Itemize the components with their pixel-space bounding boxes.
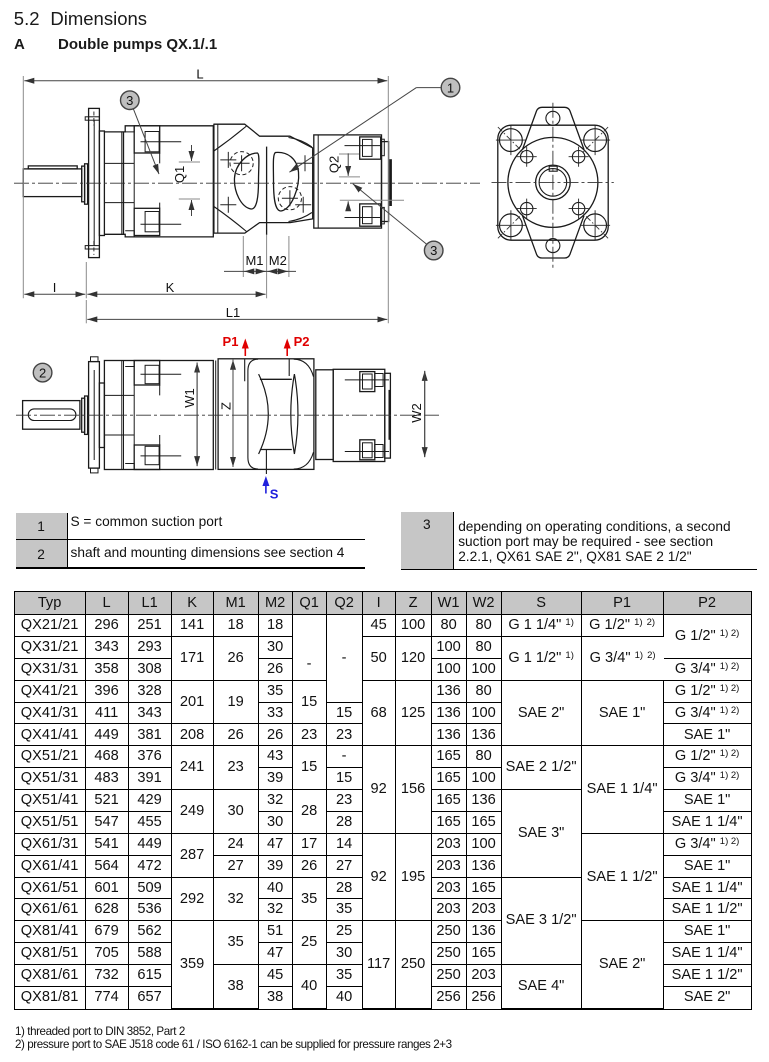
svg-text:3: 3 (126, 93, 133, 108)
svg-text:1: 1 (447, 80, 454, 95)
svg-text:3: 3 (430, 243, 437, 258)
svg-text:L: L (196, 67, 203, 82)
svg-text:2: 2 (39, 365, 46, 380)
svg-text:W1: W1 (182, 388, 197, 408)
svg-text:K: K (166, 280, 175, 295)
svg-text:M1: M1 (245, 253, 263, 268)
svg-text:Q1: Q1 (172, 166, 187, 183)
svg-text:Q2: Q2 (327, 156, 342, 173)
svg-text:W2: W2 (409, 403, 424, 423)
svg-text:L1: L1 (226, 305, 240, 320)
svg-text:I: I (53, 280, 57, 295)
svg-text:Z: Z (219, 402, 234, 410)
svg-text:P1: P1 (223, 334, 239, 349)
svg-text:P2: P2 (294, 334, 310, 349)
svg-text:S: S (270, 486, 279, 501)
svg-text:M2: M2 (269, 253, 287, 268)
